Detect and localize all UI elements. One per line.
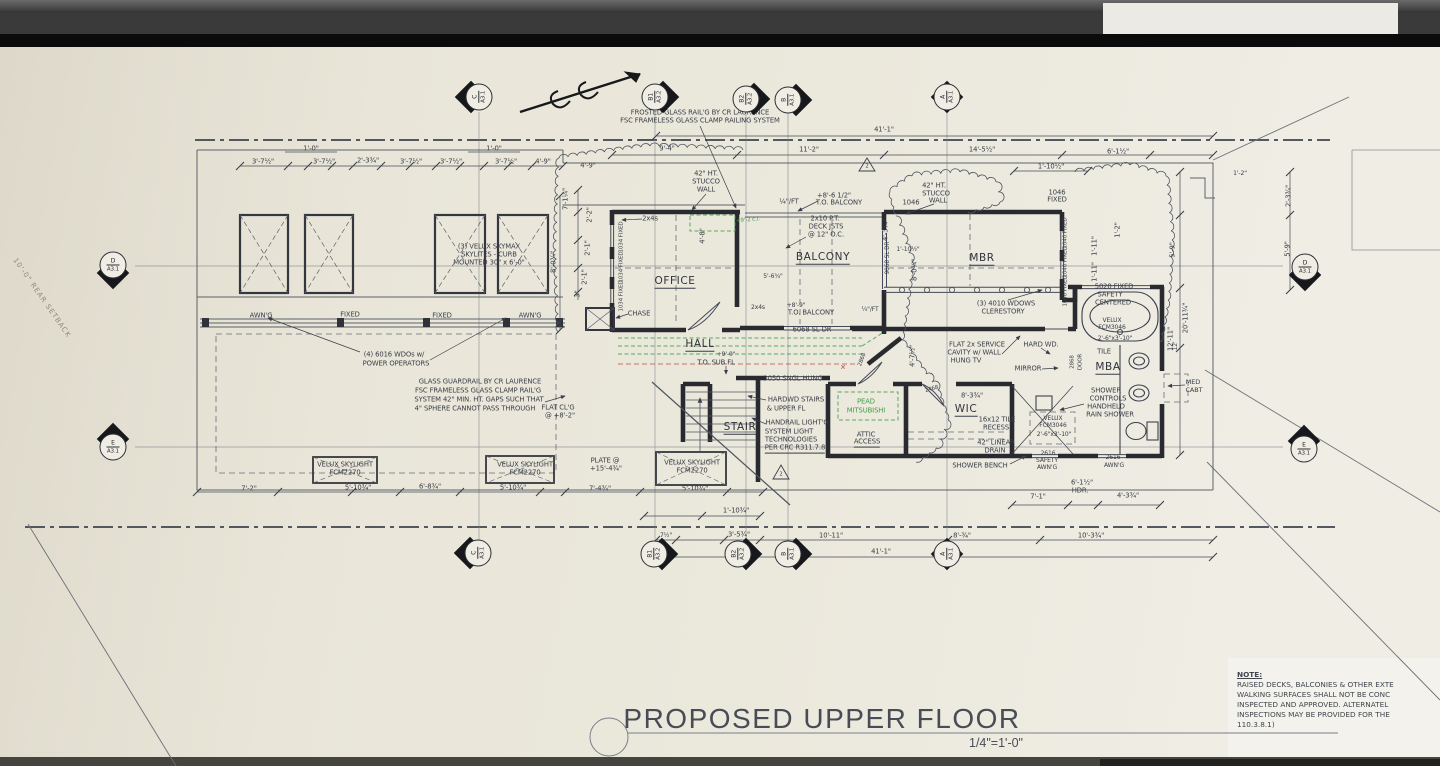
plan-label: 1'-11" <box>1092 262 1099 282</box>
plan-label: (3) 4010 WDOWS <box>977 301 1035 308</box>
plan-label: FLAT 2x SERVICE <box>949 342 1005 349</box>
plan-label: 8'-0¾" <box>912 259 919 281</box>
section-marker-sheet: A3.1 <box>479 91 487 103</box>
plan-label: 1'-2" <box>1115 222 1122 238</box>
plan-label: 1'-0" <box>486 146 502 153</box>
screenshot-stage: FROSTED GLASS RAIL'G BY CR LAURENCEFSC F… <box>0 0 1440 766</box>
plan-label: ACCESS <box>854 439 880 448</box>
plan-label: 3'-7½" <box>252 159 274 166</box>
plan-label: 1034 FIXED <box>619 221 625 252</box>
section-marker-sheet: A3.1 <box>1298 449 1310 457</box>
plan-label: FIXED <box>432 313 452 320</box>
section-marker-bubble: BA3.1 <box>775 87 802 114</box>
plan-label: SAFETY <box>1098 292 1123 299</box>
section-marker-sheet: A3.1 <box>107 447 119 455</box>
plan-label: 3'-7½" <box>313 159 335 166</box>
plan-label: 4'-3¾" <box>883 219 890 241</box>
plan-label: AWN'G <box>1104 463 1124 469</box>
section-marker-id: E <box>111 440 115 447</box>
plan-label: 5'-6¾" <box>763 274 782 280</box>
plan-label: FSC FRAMELESS GLASS CLAMP RAIL'G <box>415 388 541 395</box>
plan-label: CHASE <box>628 311 651 318</box>
section-marker-bubble: B1A3.2 <box>642 84 669 111</box>
plan-label: 41'-1" <box>871 549 891 556</box>
section-marker-sheet: A3.1 <box>947 548 955 560</box>
plan-label: ¼"/FT <box>779 199 798 206</box>
note-line: WALKING SURFACES SHALL NOT BE CONC <box>1237 690 1440 700</box>
section-marker-bubble: DA3.1 <box>1292 254 1319 281</box>
plan-label: 42" HT. <box>694 171 718 178</box>
plan-label: 2 <box>865 164 868 169</box>
plan-label: SHOWER <box>1091 388 1121 395</box>
plan-label: 4'-7½" <box>910 345 917 367</box>
plan-label: FIXED <box>340 312 360 319</box>
section-marker-sheet: A3.2 <box>746 93 754 105</box>
note-line: RAISED DECKS, BALCONIES & OTHER EXTE <box>1237 680 1440 690</box>
plan-label: 11'-2" <box>799 147 819 154</box>
plan-label: 2'-3¾" <box>357 158 379 165</box>
plan-label: 8'-0¾" <box>551 251 558 273</box>
plan-label: DECK JSTS <box>809 224 844 231</box>
plan-label: FCM2270 <box>509 470 540 477</box>
plan-label: 5'-10¾" <box>500 485 526 492</box>
plan-label: HARDWD STAIRS <box>768 397 824 404</box>
plan-label: 9'-4" <box>659 146 675 153</box>
section-marker-bubble: DA3.1 <box>100 252 127 279</box>
plan-label: MBA <box>1095 362 1120 375</box>
plan-label: HDR. <box>1072 488 1089 495</box>
plan-label: VELUX SKYLIGHT <box>664 460 720 467</box>
plan-label: TECHNOLOGIES <box>765 437 817 444</box>
plan-label: HARD WD. <box>1023 342 1058 349</box>
plan-label: STAIR <box>724 422 757 435</box>
plan-label: DRAIN <box>985 448 1006 455</box>
plan-label: PLATE @ <box>591 458 620 465</box>
plan-label: 3'-7½" <box>400 159 422 166</box>
plan-label: T.O. BALCONY <box>816 200 862 207</box>
section-marker-sheet: A3.1 <box>478 547 486 559</box>
plan-label: FLAT CL'G <box>541 405 574 412</box>
plan-label: 1040 FIXED <box>1063 217 1069 248</box>
plan-label: 1034 FIXED <box>619 251 625 282</box>
plan-label: @ 12" O.C. <box>808 232 844 239</box>
plan-label: AWN'G <box>250 313 273 320</box>
plan-label: (3) VELUX SKYMAX <box>458 244 520 251</box>
plan-label: 4" SPHERE CANNOT PASS THROUGH <box>415 406 536 413</box>
plan-label: 2868 <box>1070 355 1076 369</box>
plan-label: PER CRC R311.7.8 <box>765 445 825 454</box>
section-marker-bubble: B1A3.2 <box>641 541 668 568</box>
plan-label: 2'-2" <box>587 207 594 223</box>
plan-label: 1046 <box>903 200 920 207</box>
plan-label: 5'-10¾" <box>682 486 708 493</box>
plan-label: AWN'G <box>519 313 542 320</box>
plan-label: HALL <box>685 339 714 352</box>
plan-label: 3'-5¾" <box>728 532 750 539</box>
section-marker-bubble: EA3.1 <box>1291 436 1318 463</box>
note-lines: RAISED DECKS, BALCONIES & OTHER EXTEWALK… <box>1237 680 1440 730</box>
plan-label: MED <box>1186 379 1200 386</box>
plan-label: 10'-3¾" <box>1078 533 1104 540</box>
note-heading: NOTE: <box>1237 670 1440 680</box>
plan-label: OFFICE <box>654 276 695 289</box>
plan-label: CABT <box>1185 387 1202 394</box>
plan-label: 1'-2" <box>1233 171 1247 177</box>
plan-label: 14'-5½" <box>969 147 995 154</box>
plan-label: FSC FRAMELESS GLASS CLAMP RAILING SYSTEM <box>620 118 780 125</box>
plan-label: CONTROLS <box>1090 396 1127 403</box>
plan-label: 2'-3¾" <box>1286 185 1293 207</box>
section-marker-id: E <box>1302 442 1306 449</box>
plan-label: T.O. SUB FL <box>697 360 735 367</box>
section-marker-bubble: EA3.1 <box>100 434 127 461</box>
plan-label: 3" <box>575 290 582 297</box>
plan-label: CAVITY w/ WALL <box>947 350 1000 357</box>
plan-label: SYSTEM 42" MIN. HT. GAPS SUCH THAT <box>414 397 543 404</box>
plan-label: 1'-11" <box>1092 236 1099 256</box>
plan-label: 6'-8¾" <box>419 484 441 491</box>
section-marker-bubble: CA3.1 <box>466 84 493 111</box>
plan-label: 7'-2" <box>241 486 257 493</box>
section-marker-sheet: A3.2 <box>738 548 746 560</box>
plan-label: HANDRAIL LIGHT'G <box>766 420 829 427</box>
plan-label: 7'-4¾" <box>589 486 611 493</box>
plan-label: 1034 FIXED <box>619 280 625 311</box>
plan-label: 2x10 P.T. <box>811 216 840 223</box>
plan-label: 1'-10½" <box>896 247 919 253</box>
plan-label: 5020 FIXED <box>1095 284 1134 291</box>
plan-label: 1'-10½" <box>1038 164 1064 171</box>
plan-label: 4'-8" <box>700 228 707 244</box>
plan-label: 20'-11¾" <box>1183 303 1190 334</box>
plan-label: VELUX SKYLIGHT <box>497 462 553 469</box>
plan-label: 7'-1¼" <box>563 188 570 210</box>
plan-label: T.O. BALCONY <box>788 310 834 317</box>
plan-label: SHOWER BENCH <box>952 463 1007 470</box>
plan-label: RECESS <box>983 425 1009 432</box>
plan-label: 7'-1" <box>1030 494 1046 501</box>
plan-label: 3050 SNGL HUNG <box>763 376 822 383</box>
plan-label: 5'-9" <box>1170 242 1177 258</box>
plan-label: 4'-9" <box>535 159 551 166</box>
plan-label: MOUNTED 30" x 6'-0" <box>453 260 524 267</box>
note-line: INSPECTIONS MAY BE PROVIDED FOR THE <box>1237 710 1440 720</box>
plan-label: 4'-9" <box>580 163 596 170</box>
plan-label: ¼"/FT <box>861 307 878 313</box>
plan-label: 6'-1½" <box>1071 480 1093 487</box>
section-marker-id: D <box>111 258 116 265</box>
note-block: NOTE: RAISED DECKS, BALCONIES & OTHER EX… <box>1237 670 1440 730</box>
section-marker-sheet: A3.1 <box>107 265 119 273</box>
section-marker-id: D <box>1303 260 1308 267</box>
plan-label: @ +8'-2" <box>545 413 575 420</box>
note-line: INSPECTED AND APPROVED. ALTERNATEL <box>1237 700 1440 710</box>
note-line: 110.3.8.1) <box>1237 720 1440 730</box>
plan-label: SYSTEM LIGHT <box>765 429 813 436</box>
plan-label: 10'-11" <box>819 533 843 540</box>
plan-label: FCM3046 <box>1098 325 1125 331</box>
plan-label: 9068 SL DR <box>886 242 892 275</box>
plan-label: 2'-6"x3'-10" <box>1098 336 1133 342</box>
section-marker-sheet: A3.2 <box>655 91 663 103</box>
plan-label: 6'-1½" <box>1107 149 1129 156</box>
section-marker-bubble: AA3.1 <box>934 84 961 111</box>
plan-label: +15'-4¾" <box>590 466 622 473</box>
plan-label: 2'-6"x3'-10" <box>1037 432 1072 438</box>
plan-label: VELUX SKYLIGHT <box>317 462 373 469</box>
section-marker-bubble: CA3.1 <box>465 540 492 567</box>
plan-label: MBR <box>969 253 994 266</box>
sheet-scale: 1/4"=1'-0" <box>969 736 1023 750</box>
section-marker-sheet: A3.1 <box>947 91 955 103</box>
plan-label: HUNG TV <box>951 358 982 365</box>
plan-label: AWN'G <box>1037 465 1057 471</box>
plan-label: SKYLITES - CURB <box>461 252 517 259</box>
plan-label: 42" LINEAR <box>977 440 1014 447</box>
section-marker-bubble: BA3.1 <box>775 541 802 568</box>
plan-label: +9'-0" <box>717 352 736 358</box>
plan-label: 3'-7½" <box>440 159 462 166</box>
plan-label: POWER OPERATORS <box>363 361 430 368</box>
plan-label: 1040 FIXED <box>1063 246 1069 277</box>
plan-label: ✕ <box>840 365 846 372</box>
plan-label: WIC <box>955 404 978 417</box>
plan-label: PEAD <box>857 399 875 406</box>
plan-label: FCM3046 <box>1039 423 1066 429</box>
plan-label: 8'-¾" <box>953 533 971 540</box>
plan-label: 1'-10¾" <box>723 508 749 515</box>
section-marker-bubble: AA3.1 <box>934 541 961 568</box>
section-marker-sheet: A3.1 <box>788 94 796 106</box>
plan-label: TILE <box>1097 349 1111 356</box>
section-marker-sheet: A3.1 <box>788 548 796 560</box>
plan-label: RAIN SHOWER <box>1086 412 1134 419</box>
plan-label: WALL <box>929 198 947 205</box>
plan-label: 1'-0" <box>303 146 319 153</box>
plan-label: FCM2270 <box>329 470 360 477</box>
plan-label: 2x4s <box>642 216 658 223</box>
plan-label: 12'-11" <box>1168 327 1175 351</box>
section-marker-sheet: A3.1 <box>1299 267 1311 275</box>
plan-label: DOOR <box>1078 354 1084 370</box>
plan-label: FIXED <box>1047 197 1067 204</box>
plan-label: FCM2270 <box>676 468 707 475</box>
plan-label: 2'-1" <box>585 240 592 256</box>
section-marker-sheet: A3.2 <box>654 548 662 560</box>
plan-label: 6068 SL DR <box>793 327 832 334</box>
sheet-title: PROPOSED UPPER FLOOR <box>623 703 1020 735</box>
plan-label: STUCCO <box>692 179 720 186</box>
plan-label: MITSUBISHI <box>847 408 885 415</box>
plan-label: (4) 6016 WDOs w/ <box>364 352 425 359</box>
plan-label: 2 <box>779 472 782 477</box>
plan-label: WALL <box>697 187 715 194</box>
plan-label: CENTERED <box>1095 300 1131 307</box>
plan-label: 5'-9" <box>1285 241 1292 257</box>
plan-label: 5'-10¾" <box>345 485 371 492</box>
plan-label: 3'-7½" <box>495 159 517 166</box>
plan-label: 4'-3¾" <box>1117 493 1139 500</box>
plan-label: 2x4s <box>751 305 765 311</box>
plan-label: CLERESTORY <box>981 309 1024 316</box>
plan-label: 8'-3¾" <box>961 393 983 400</box>
plan-label: 2616 <box>1106 455 1121 461</box>
plan-label: 41'-1" <box>874 127 894 134</box>
plan-label: MIRROR <box>1015 366 1042 373</box>
plan-label: 1040 FIXED <box>1063 275 1069 306</box>
section-marker-bubble: B2A3.2 <box>725 541 752 568</box>
plan-label: & UPPER FL <box>767 406 806 413</box>
section-marker-bubble: B2A3.2 <box>733 86 760 113</box>
plan-label: HANDHELD <box>1087 404 1125 411</box>
plan-label: 2'-1" <box>582 269 589 285</box>
plan-label: BALCONY <box>796 252 850 265</box>
plan-label: GLASS GUARDRAIL BY CR LAURENCE <box>419 379 542 386</box>
plan-label: 16x12 TILE <box>979 417 1016 424</box>
plan-label: 42" HT. <box>922 183 946 190</box>
